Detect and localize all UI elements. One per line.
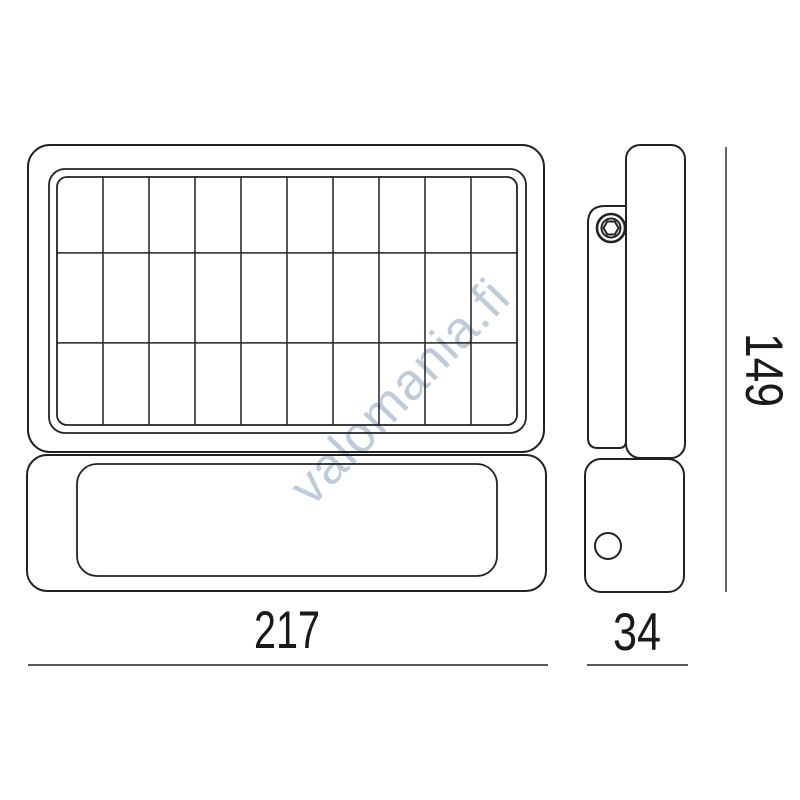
side-panel-body	[626, 145, 685, 458]
product-dimension-drawing: valomania.fi 217	[0, 0, 800, 800]
dimension-label-side-depth: 34	[613, 603, 661, 662]
dimension-label-front-width: 217	[254, 601, 320, 660]
mounting-hole	[595, 533, 621, 559]
dimension-height: 149	[726, 147, 793, 592]
lamp-lens	[77, 464, 497, 576]
hex-bolt-hexagon	[604, 222, 619, 235]
solar-grid-lines	[57, 177, 517, 425]
drawing-canvas: 217 34 149	[0, 0, 800, 800]
dimension-side-depth: 34	[587, 603, 688, 665]
lamp-housing-front	[27, 455, 546, 591]
side-view	[585, 145, 685, 592]
hex-bolt-icon	[597, 214, 625, 242]
dimension-front-width: 217	[28, 601, 548, 665]
lamp-housing-side	[585, 459, 684, 592]
front-view	[27, 145, 546, 591]
dimension-label-height: 149	[734, 333, 793, 407]
front-body-outline	[28, 145, 544, 452]
